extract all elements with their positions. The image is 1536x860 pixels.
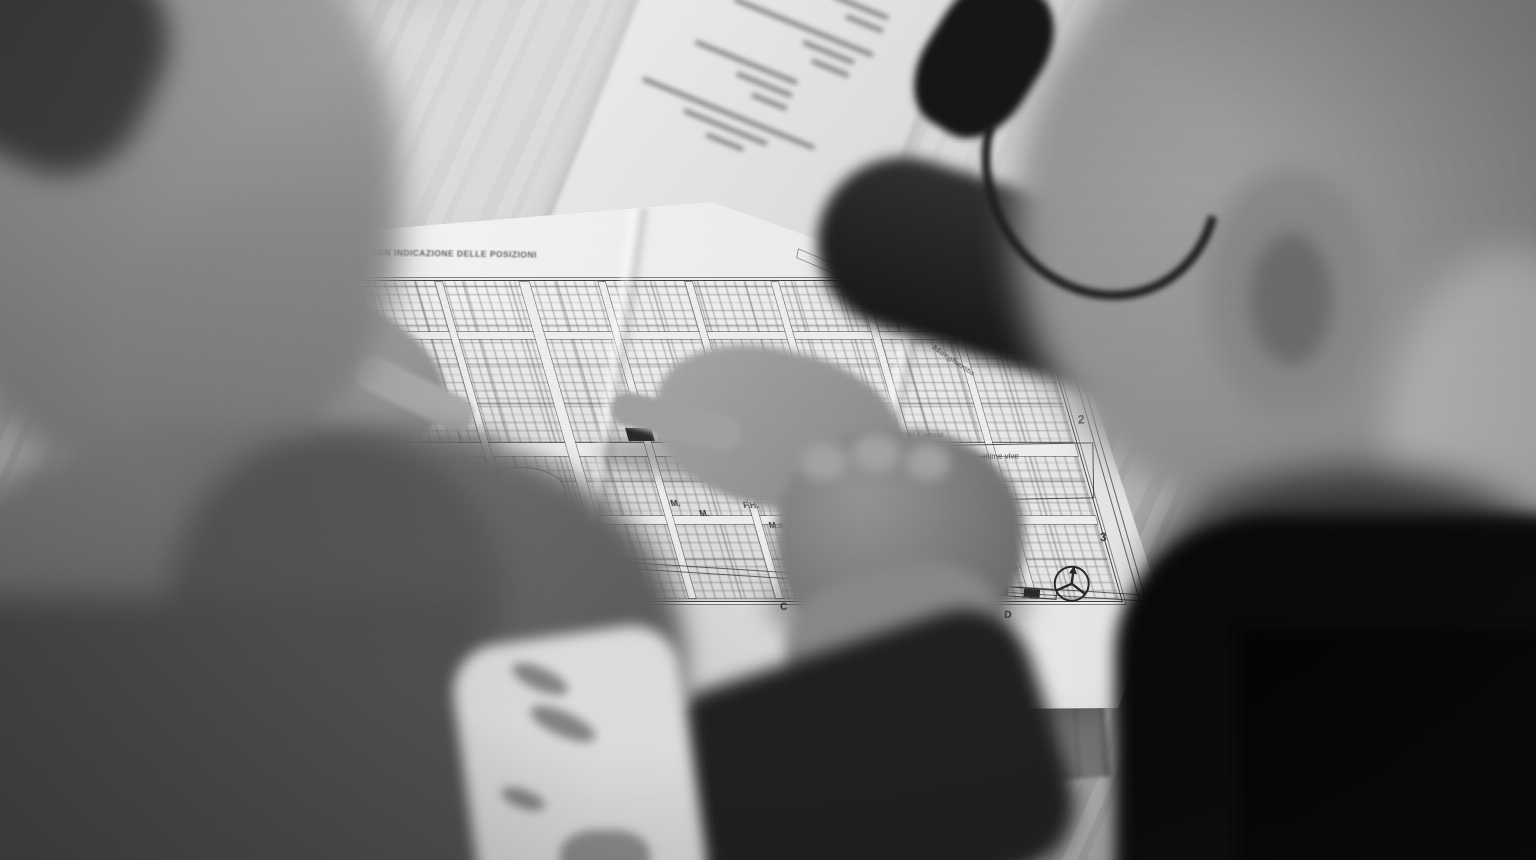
grid-number: 3: [1100, 530, 1107, 544]
document-text-line: [811, 59, 850, 78]
document-text-line: [706, 133, 745, 152]
document-text-line: [845, 14, 884, 33]
fist-knuckle: [852, 434, 900, 472]
foreground-paper-marking: [560, 830, 650, 860]
left-person-jacket: [0, 598, 480, 860]
right-person-jacket-fill: [1240, 630, 1536, 860]
fist-knuckle: [906, 444, 950, 480]
document-text-line: [733, 0, 874, 57]
right-person-ear-inner: [1250, 233, 1332, 365]
document-text-line: [642, 77, 815, 150]
north-arrow-icon: [1046, 558, 1097, 609]
photograph: Flora Eterna La Perpetuità Largo Consol.…: [0, 0, 1536, 860]
document-text-line: [751, 93, 788, 111]
document-text-line: [832, 0, 889, 20]
fist-knuckle: [800, 443, 848, 481]
